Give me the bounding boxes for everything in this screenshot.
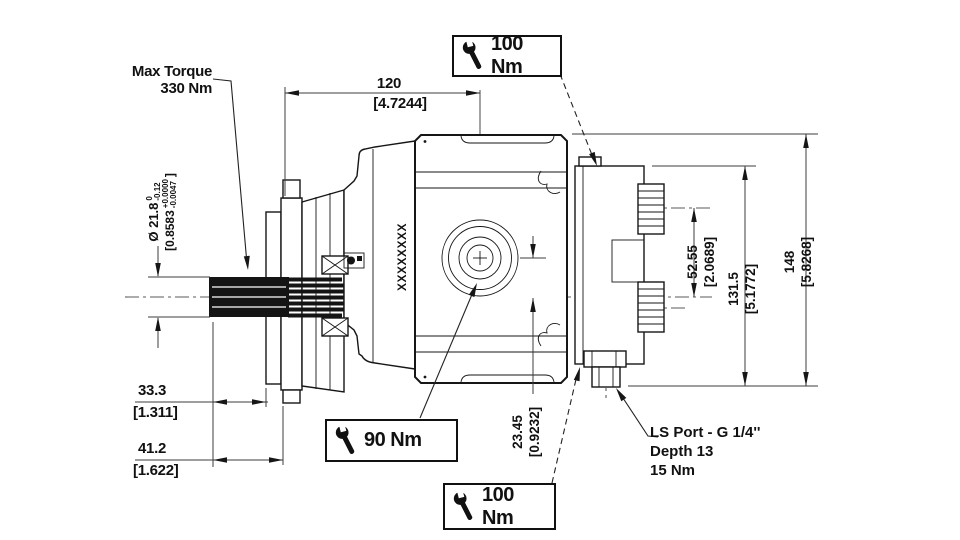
dia-in-tolerance: +0.0000 -0.0047 bbox=[162, 179, 178, 208]
torque-value-front: 90 Nm bbox=[364, 429, 422, 452]
certification-glyph bbox=[357, 256, 362, 261]
pin-dot bbox=[424, 140, 427, 143]
dim-131-in: [5.1772] bbox=[743, 244, 760, 334]
dim-23-mm: 23.45 bbox=[510, 392, 527, 472]
dim-23-in: [0.9232] bbox=[527, 392, 544, 472]
dim-41-in: [1.622] bbox=[133, 463, 178, 480]
dia-metric-line: Ø 21.8 0 -0.12 bbox=[146, 149, 162, 275]
spline-tooth bbox=[288, 296, 351, 300]
ls-port-label: LS Port - G 1/4'' Depth 13 15 Nm bbox=[650, 424, 761, 480]
spline-tooth bbox=[288, 314, 342, 318]
ls-port-line2: Depth 13 bbox=[650, 443, 761, 462]
dim-148-in: [5.8268] bbox=[799, 217, 816, 307]
dim-131-mm: 131.5 bbox=[726, 244, 743, 334]
dim-shaft-diameter: Ø 21.8 0 -0.12 [0.8583 +0.0000 -0.0047 ] bbox=[146, 149, 186, 275]
dim-23-offset: 23.45 [0.9232] bbox=[510, 392, 544, 472]
upper-ribbed-port bbox=[638, 184, 664, 234]
dim-131-height: 131.5 [5.1772] bbox=[726, 244, 762, 334]
dim-120-in: [4.7244] bbox=[352, 96, 448, 113]
dia-mm-value: Ø 21.8 bbox=[146, 203, 162, 242]
wrench-icon bbox=[451, 489, 475, 525]
top-plug-boss bbox=[579, 157, 601, 166]
dim-148-mm: 148 bbox=[782, 217, 799, 307]
dim-52-offset: 52.55 [2.0689] bbox=[685, 217, 721, 307]
dia-in-bracket: ] bbox=[163, 173, 178, 177]
dim-33-in: [1.311] bbox=[133, 405, 178, 422]
certification-glyph bbox=[347, 257, 355, 265]
end-cap bbox=[575, 157, 664, 387]
dim-120-mm: 120 bbox=[358, 76, 420, 93]
leader-torque-bottom bbox=[552, 367, 580, 483]
torque-callout-bottom: 100 Nm bbox=[443, 483, 556, 530]
torque-callout-top: 100 Nm bbox=[452, 35, 562, 77]
wrench-icon bbox=[460, 39, 484, 73]
dim-52-in: [2.0689] bbox=[702, 217, 719, 307]
leader-max-torque bbox=[213, 79, 250, 270]
pin-dot bbox=[424, 376, 427, 379]
ls-port-fitting bbox=[592, 367, 620, 387]
max-torque-label: Max Torque 330 Nm bbox=[107, 64, 212, 97]
max-torque-line1: Max Torque bbox=[107, 64, 212, 81]
model-code-marking: XXXXXXXX bbox=[395, 209, 409, 305]
ls-port-line3: 15 Nm bbox=[650, 462, 761, 481]
torque-value-top: 100 Nm bbox=[491, 33, 554, 79]
dim-33-mm: 33.3 bbox=[138, 383, 166, 400]
lower-ribbed-port bbox=[638, 282, 664, 332]
wrench-icon bbox=[333, 424, 357, 458]
dim-41-mm: 41.2 bbox=[138, 441, 166, 458]
ls-port-line1: LS Port - G 1/4'' bbox=[650, 424, 761, 443]
dia-in-value: [0.8583 bbox=[163, 210, 178, 251]
dim-148-height: 148 [5.8268] bbox=[782, 217, 818, 307]
dia-in-tol-lower: -0.0047 bbox=[170, 179, 178, 208]
spline-tooth bbox=[288, 284, 348, 288]
main-housing bbox=[415, 135, 567, 383]
spline-tooth bbox=[288, 302, 351, 306]
dim-52-mm: 52.55 bbox=[685, 217, 702, 307]
technical-drawing-page: Max Torque 330 Nm 120 [4.7244] 100 Nm Ø … bbox=[0, 0, 960, 540]
end-cap-body bbox=[575, 166, 644, 364]
ls-port-flange bbox=[584, 351, 626, 367]
torque-callout-front: 90 Nm bbox=[325, 419, 458, 462]
spline-tooth bbox=[288, 278, 342, 282]
spline-tooth bbox=[288, 308, 348, 312]
flange-ear-bottom bbox=[283, 390, 300, 403]
flange-ear-top bbox=[283, 180, 300, 198]
max-torque-line2: 330 Nm bbox=[107, 81, 212, 98]
dia-mm-tolerance: 0 -0.12 bbox=[146, 182, 162, 200]
spline-tooth bbox=[288, 290, 351, 294]
torque-value-bottom: 100 Nm bbox=[482, 484, 548, 530]
dia-inch-line: [0.8583 +0.0000 -0.0047 ] bbox=[162, 149, 178, 275]
